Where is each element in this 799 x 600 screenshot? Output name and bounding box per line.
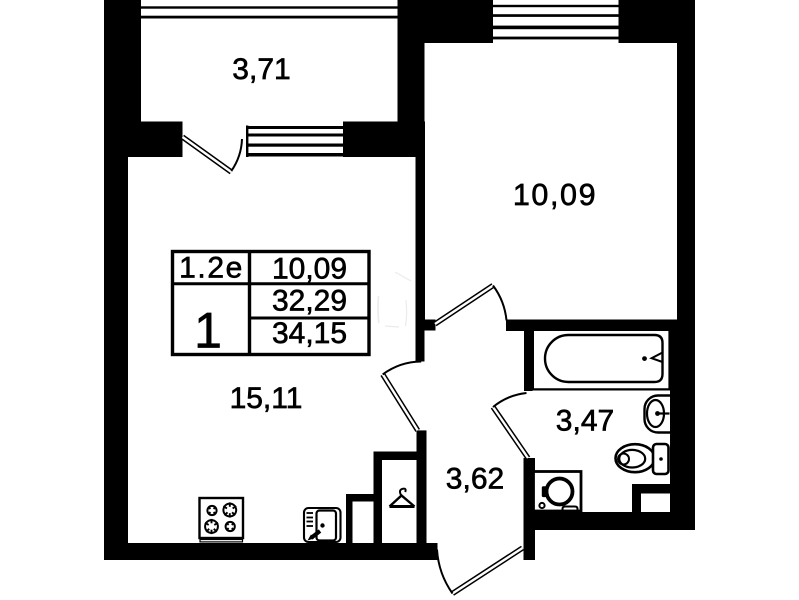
- svg-text:3,71: 3,71: [232, 53, 290, 86]
- svg-text:32,29: 32,29: [272, 285, 347, 318]
- svg-text:15,11: 15,11: [230, 382, 303, 415]
- svg-text:1.2e: 1.2e: [179, 252, 244, 285]
- svg-text:3,47: 3,47: [556, 405, 614, 438]
- svg-text:3,62: 3,62: [446, 463, 504, 496]
- svg-text:10,09: 10,09: [272, 253, 347, 286]
- svg-text:10,09: 10,09: [513, 178, 597, 212]
- svg-text:1: 1: [194, 303, 222, 359]
- svg-text:34,15: 34,15: [272, 317, 347, 350]
